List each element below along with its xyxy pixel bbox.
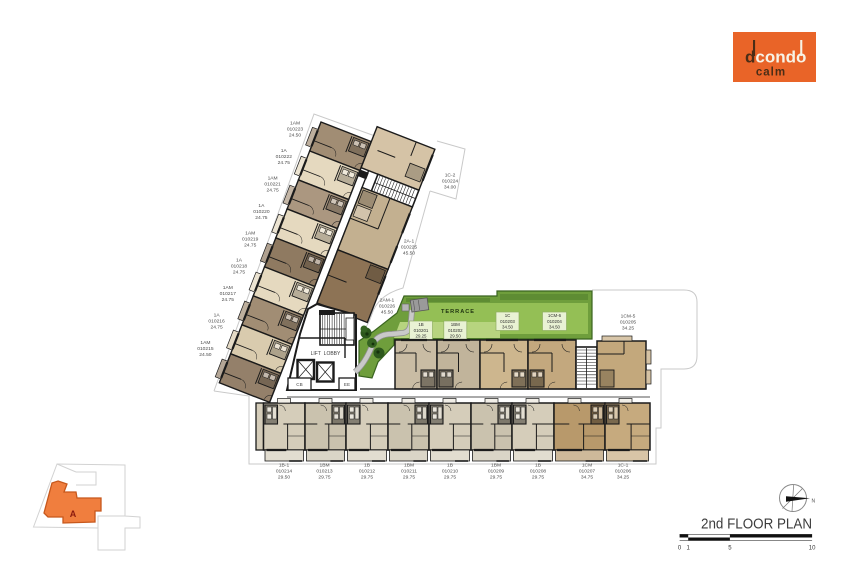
svg-text:A: A	[70, 509, 77, 519]
svg-text:LIFT LOBBY: LIFT LOBBY	[311, 351, 341, 357]
svg-text:2nd FLOOR PLAN: 2nd FLOOR PLAN	[701, 516, 812, 533]
svg-text:calm: calm	[756, 67, 786, 79]
svg-text:1CM-501020534.25: 1CM-501020534.25	[620, 314, 637, 332]
svg-text:2AM-101022645.50: 2AM-101022645.50	[379, 298, 396, 316]
svg-text:10: 10	[809, 546, 816, 552]
svg-text:N: N	[812, 499, 816, 505]
svg-text:TERRACE: TERRACE	[441, 309, 475, 315]
svg-text:EE: EE	[344, 382, 350, 387]
svg-text:CB: CB	[296, 382, 302, 387]
